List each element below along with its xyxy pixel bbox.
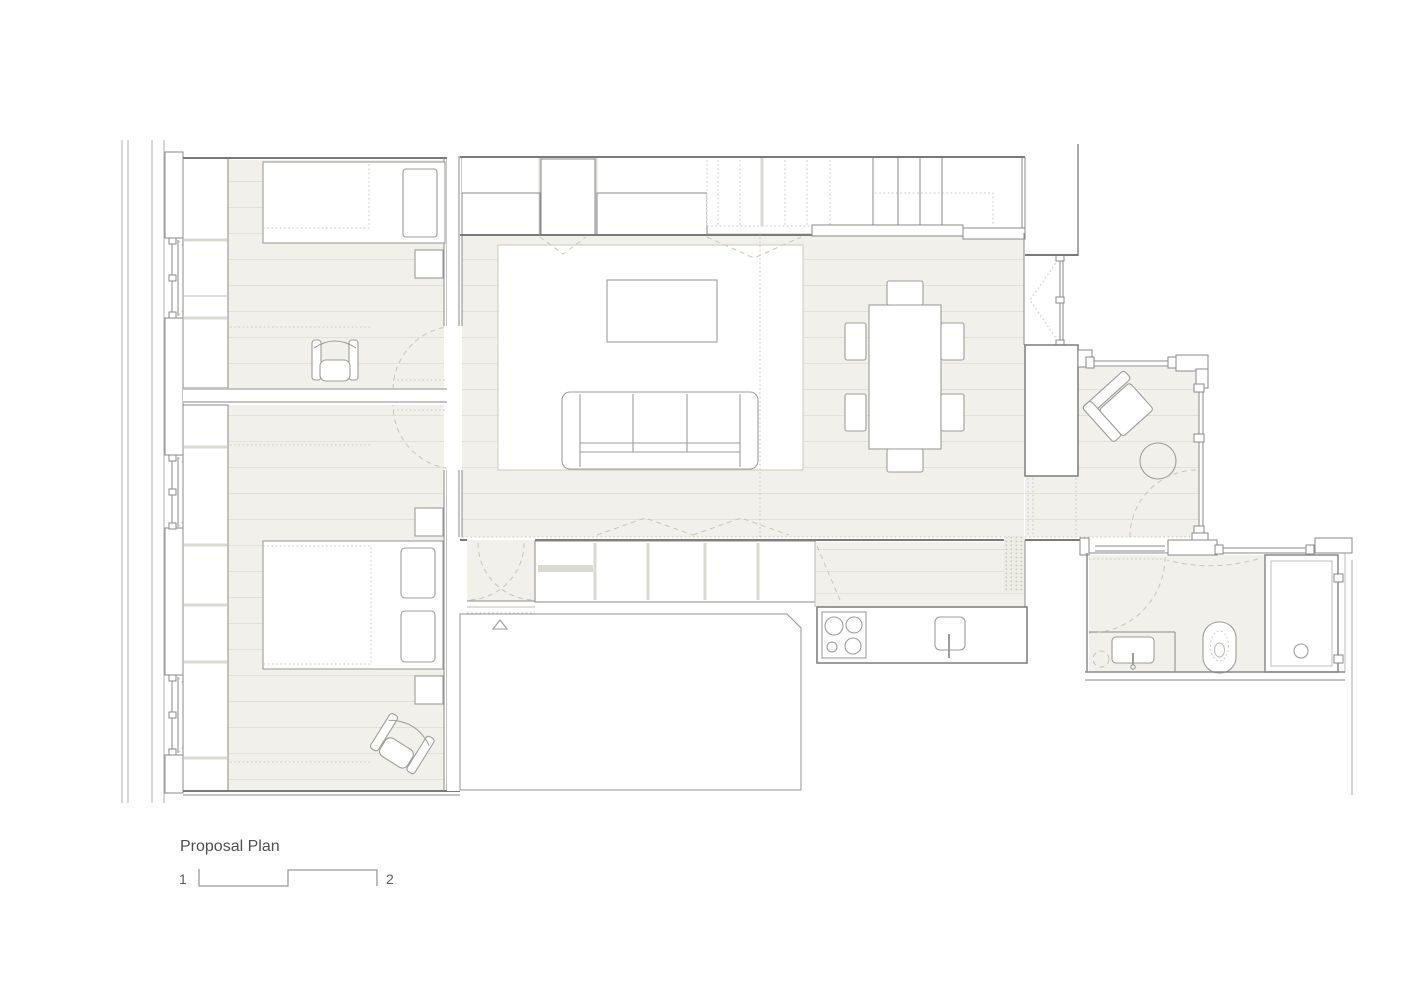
counter xyxy=(817,607,1027,663)
plan-title: Proposal Plan xyxy=(180,838,280,855)
appliance-hatch xyxy=(1004,537,1025,592)
glazing-north xyxy=(1086,357,1176,368)
toilet xyxy=(1203,622,1236,673)
nightstand-upper xyxy=(415,508,443,536)
nightstand-lower xyxy=(415,676,443,704)
single-bed xyxy=(263,162,445,243)
shower-tray xyxy=(1265,555,1338,672)
chair-right-2 xyxy=(941,394,964,431)
passage-floor xyxy=(1025,476,1078,537)
east-wall-block xyxy=(1025,345,1078,476)
bedroom-dividing-wall xyxy=(183,388,462,403)
chair-left-2 xyxy=(845,394,866,431)
floor-plan-canvas: Proposal Plan 1 2 xyxy=(0,0,1414,1000)
glazing-north-west xyxy=(1095,546,1165,551)
scale-bar xyxy=(199,869,377,886)
stair-landing-2 xyxy=(963,228,1025,239)
vestibule-floor xyxy=(467,540,535,601)
chair-bottom xyxy=(887,449,923,472)
chair-left-1 xyxy=(845,323,866,360)
wardrobe xyxy=(183,405,228,791)
dining-table xyxy=(869,305,941,449)
glazing-north-east xyxy=(1215,545,1314,554)
scale-start-label: 1 xyxy=(179,871,187,887)
skylight-dashed xyxy=(707,158,853,226)
wardrobe xyxy=(183,158,228,388)
facade-lines xyxy=(122,140,164,803)
cabinet-row xyxy=(535,541,815,602)
stair-landing xyxy=(812,225,963,236)
double-bed xyxy=(263,541,443,669)
side-table xyxy=(415,250,443,278)
void-area xyxy=(460,614,801,790)
kitchen-worktop-floor xyxy=(815,542,1025,607)
scale-end-label: 2 xyxy=(386,871,394,887)
floor-plan-drawing: Proposal Plan 1 2 xyxy=(0,0,1414,1000)
chair-top xyxy=(887,281,923,305)
chair-right-1 xyxy=(941,323,964,360)
east-window xyxy=(1030,255,1064,346)
sofa xyxy=(562,392,758,469)
title-block: Proposal Plan 1 2 xyxy=(179,838,394,887)
